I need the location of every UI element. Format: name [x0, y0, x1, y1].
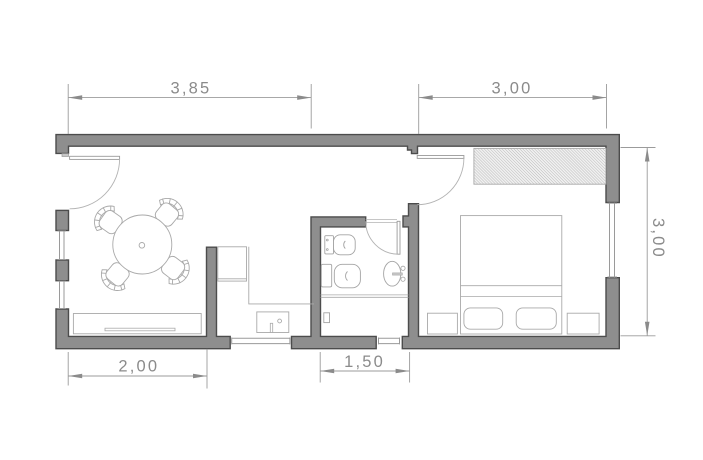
svg-text:1,50: 1,50	[344, 353, 385, 371]
svg-text:3,00: 3,00	[492, 80, 533, 98]
svg-text:3,85: 3,85	[170, 80, 211, 98]
svg-text:3,00: 3,00	[649, 218, 667, 259]
svg-text:2,00: 2,00	[118, 358, 159, 376]
